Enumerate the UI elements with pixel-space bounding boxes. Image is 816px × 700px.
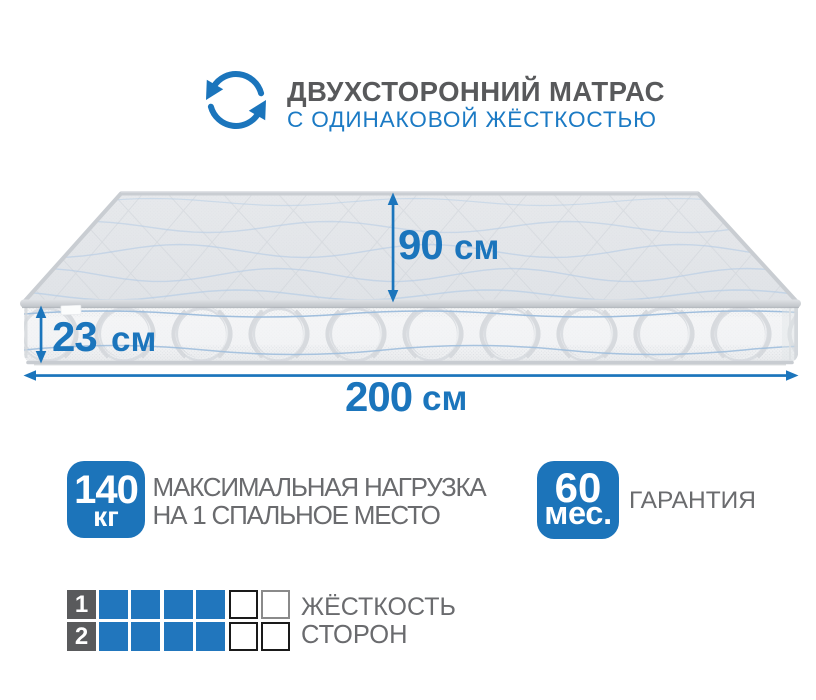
svg-text:см: см [111, 320, 156, 359]
svg-text:см: см [422, 379, 467, 418]
svg-text:см: см [454, 228, 499, 267]
svg-text:200: 200 [345, 373, 412, 420]
svg-text:90: 90 [398, 221, 443, 268]
svg-text:23: 23 [52, 313, 97, 360]
